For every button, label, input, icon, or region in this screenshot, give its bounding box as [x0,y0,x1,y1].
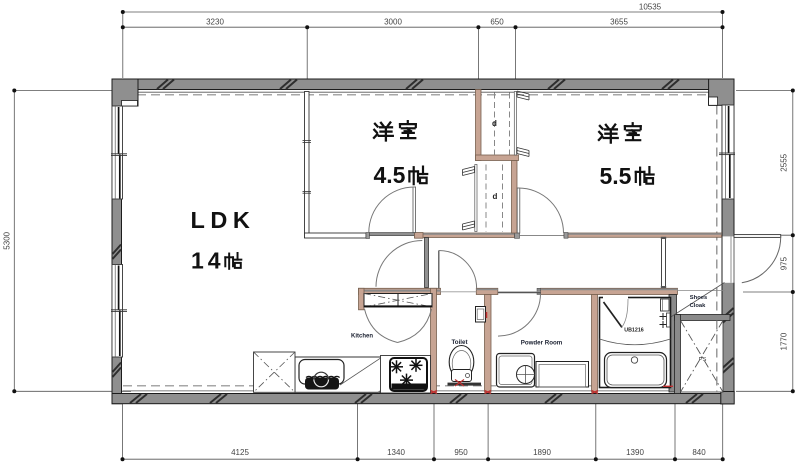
svg-text:4125: 4125 [231,448,249,457]
svg-text:Cloak: Cloak [690,303,707,309]
svg-text:4.5: 4.5 [374,162,406,188]
svg-text:5.5: 5.5 [600,163,632,189]
svg-text:10535: 10535 [639,3,662,12]
svg-text:Kitchen: Kitchen [351,334,373,340]
svg-text:3000: 3000 [384,18,402,27]
svg-text:UB1216: UB1216 [624,328,643,334]
svg-text:LDK: LDK [191,207,256,233]
svg-text:3230: 3230 [206,18,224,27]
svg-text:14: 14 [191,247,225,273]
svg-text:840: 840 [692,448,706,457]
svg-text:1770: 1770 [780,332,789,350]
svg-text:975: 975 [780,256,789,270]
svg-text:950: 950 [454,448,468,457]
svg-text:Toilet: Toilet [451,339,467,346]
svg-text:3655: 3655 [610,18,628,27]
svg-text:d: d [492,119,497,128]
svg-text:1390: 1390 [626,448,644,457]
svg-text:1340: 1340 [387,448,405,457]
svg-text:Shoes: Shoes [690,295,707,301]
svg-text:PS: PS [699,357,707,363]
svg-text:650: 650 [490,18,504,27]
svg-text:2555: 2555 [780,153,789,171]
svg-text:d: d [493,192,498,201]
svg-text:Powder Room: Powder Room [521,340,563,347]
svg-text:1890: 1890 [533,448,551,457]
svg-text:5300: 5300 [3,231,12,249]
